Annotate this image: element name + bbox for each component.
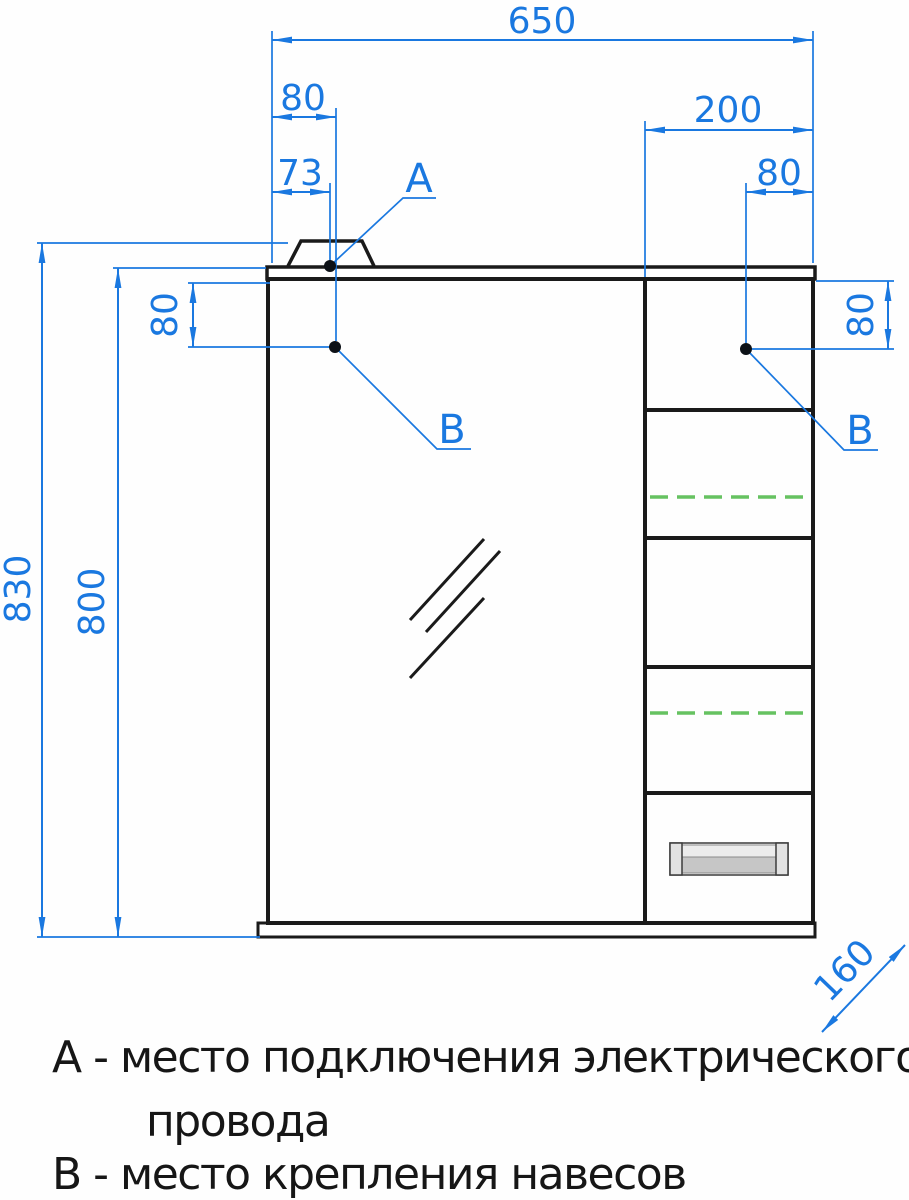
point-a-dot (324, 260, 336, 272)
mirror-glint-lines (410, 539, 500, 678)
cabinet-body (258, 241, 815, 937)
dim-overall-height-value: 830 (0, 555, 39, 624)
dim-left-hinge-y-value: 80 (145, 292, 186, 338)
legend-line-wire-cont: провода (146, 1100, 329, 1144)
bottom-board (258, 923, 815, 937)
dim-right-hinge-y-value: 80 (841, 292, 882, 338)
label-point-b-left: B (438, 407, 465, 453)
leader-point-a (330, 198, 436, 266)
legend-line-hinges: В - место крепления навесов (52, 1153, 686, 1197)
technical-drawing: 650 80 73 200 80 80 (0, 0, 909, 1200)
label-point-a: A (405, 156, 433, 202)
dim-depth-value: 160 (806, 932, 883, 1010)
drawer-handle (670, 843, 788, 875)
cabinet-drawing-canvas: 650 80 73 200 80 80 (0, 0, 909, 1200)
dim-right-section-value: 200 (694, 90, 763, 131)
dim-left-hinge-x-value: 80 (280, 78, 326, 119)
dimension-annotations: 650 80 73 200 80 80 (0, 1, 905, 1032)
dim-overall-width-value: 650 (508, 1, 577, 42)
dim-wire-x-value: 73 (277, 153, 323, 194)
dim-body-height-value: 800 (72, 568, 113, 637)
dim-right-hinge-x-value: 80 (756, 153, 802, 194)
legend-line-wire: А - место подключения электрического (52, 1036, 909, 1080)
mirror-door (268, 279, 645, 923)
point-b-left-dot (329, 341, 341, 353)
label-point-b-right: B (846, 408, 873, 454)
right-shelf-column (645, 279, 813, 923)
point-b-right-dot (740, 343, 752, 355)
